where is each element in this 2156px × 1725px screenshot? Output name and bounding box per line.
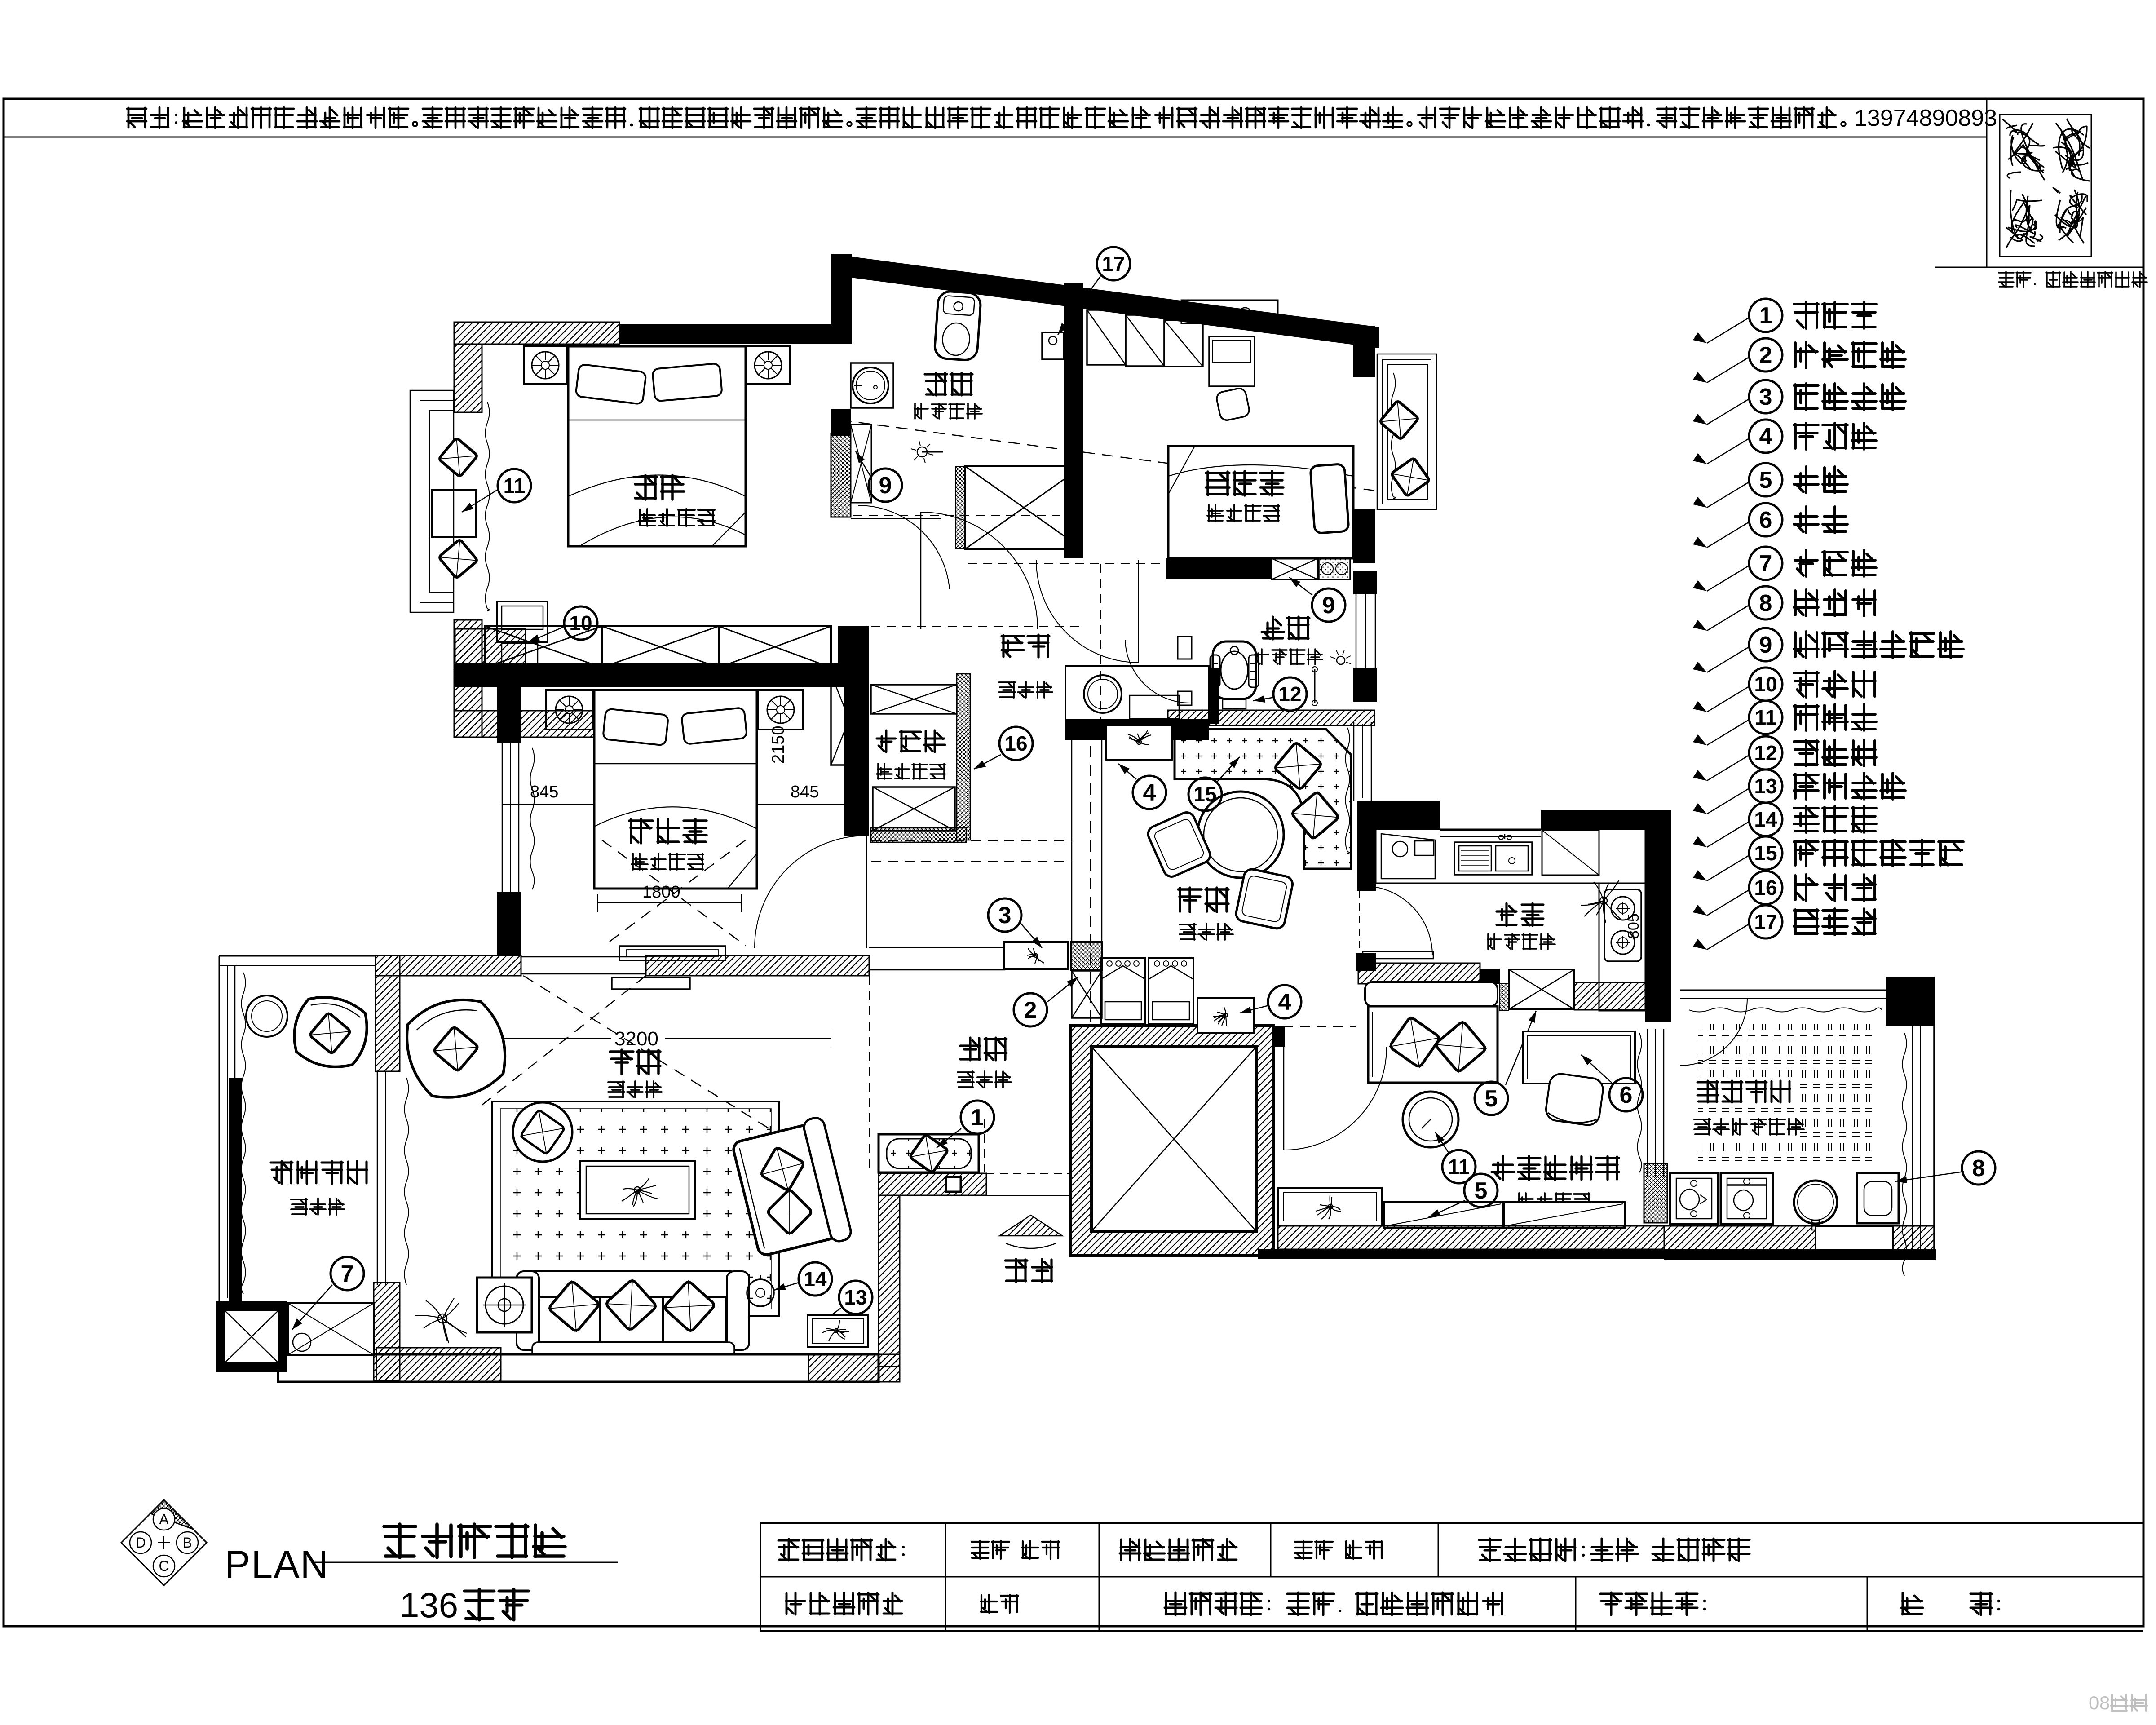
svg-text:PLAN: PLAN (225, 1543, 329, 1586)
svg-text:11: 11 (1755, 706, 1777, 729)
svg-text:9: 9 (1322, 593, 1335, 619)
svg-text:B: B (182, 1535, 192, 1551)
svg-text:9: 9 (1759, 632, 1772, 658)
svg-text:16: 16 (1004, 732, 1027, 755)
svg-text:14: 14 (804, 1267, 827, 1291)
svg-text:8: 8 (1972, 1155, 1985, 1181)
svg-text:0: 0 (2089, 1692, 2099, 1713)
svg-text:6: 6 (1620, 1082, 1633, 1108)
svg-text:7: 7 (341, 1261, 354, 1287)
svg-text:6: 6 (1759, 507, 1772, 533)
svg-text:1: 1 (1759, 303, 1772, 329)
svg-text:5: 5 (1759, 467, 1772, 493)
svg-text:12: 12 (1278, 682, 1301, 706)
svg-text:1: 1 (971, 1105, 984, 1131)
svg-text:12: 12 (1754, 741, 1777, 765)
svg-text:3: 3 (998, 902, 1012, 929)
svg-text:2150: 2150 (769, 725, 788, 764)
svg-text:4: 4 (1278, 989, 1291, 1015)
svg-text:8: 8 (1759, 590, 1772, 616)
svg-text:7: 7 (1759, 551, 1772, 577)
svg-text:5: 5 (1475, 1178, 1488, 1204)
svg-text:845: 845 (530, 783, 558, 801)
svg-text:2: 2 (1759, 342, 1772, 368)
svg-text:136: 136 (400, 1585, 458, 1625)
svg-text:4: 4 (1759, 424, 1772, 450)
svg-text:14: 14 (1754, 808, 1777, 831)
svg-text:4: 4 (1143, 780, 1156, 806)
svg-text:3200: 3200 (614, 1028, 658, 1050)
svg-text:8: 8 (2099, 1692, 2110, 1713)
svg-text:13: 13 (844, 1286, 867, 1309)
svg-text:A: A (159, 1511, 169, 1527)
svg-text:11: 11 (1448, 1155, 1470, 1178)
svg-text:16: 16 (1754, 876, 1777, 899)
svg-text:C: C (159, 1558, 169, 1574)
svg-text:1800: 1800 (642, 883, 680, 902)
svg-text:9: 9 (879, 473, 892, 499)
svg-text:D: D (135, 1535, 146, 1551)
svg-text:.: . (2032, 270, 2037, 289)
svg-text:15: 15 (1754, 841, 1777, 865)
svg-text:10: 10 (1754, 672, 1777, 696)
svg-text:11: 11 (504, 474, 526, 497)
svg-text:2: 2 (1024, 997, 1037, 1023)
svg-text:17: 17 (1754, 910, 1777, 933)
svg-text:3: 3 (1759, 384, 1772, 410)
svg-text:5: 5 (1485, 1086, 1498, 1112)
svg-text:13974890893: 13974890893 (1854, 105, 1997, 131)
svg-text:17: 17 (1102, 252, 1125, 275)
svg-text:845: 845 (791, 783, 819, 801)
svg-text:805: 805 (1625, 913, 1642, 939)
svg-text:.: . (1337, 1591, 1343, 1618)
svg-text:13: 13 (1754, 774, 1777, 798)
